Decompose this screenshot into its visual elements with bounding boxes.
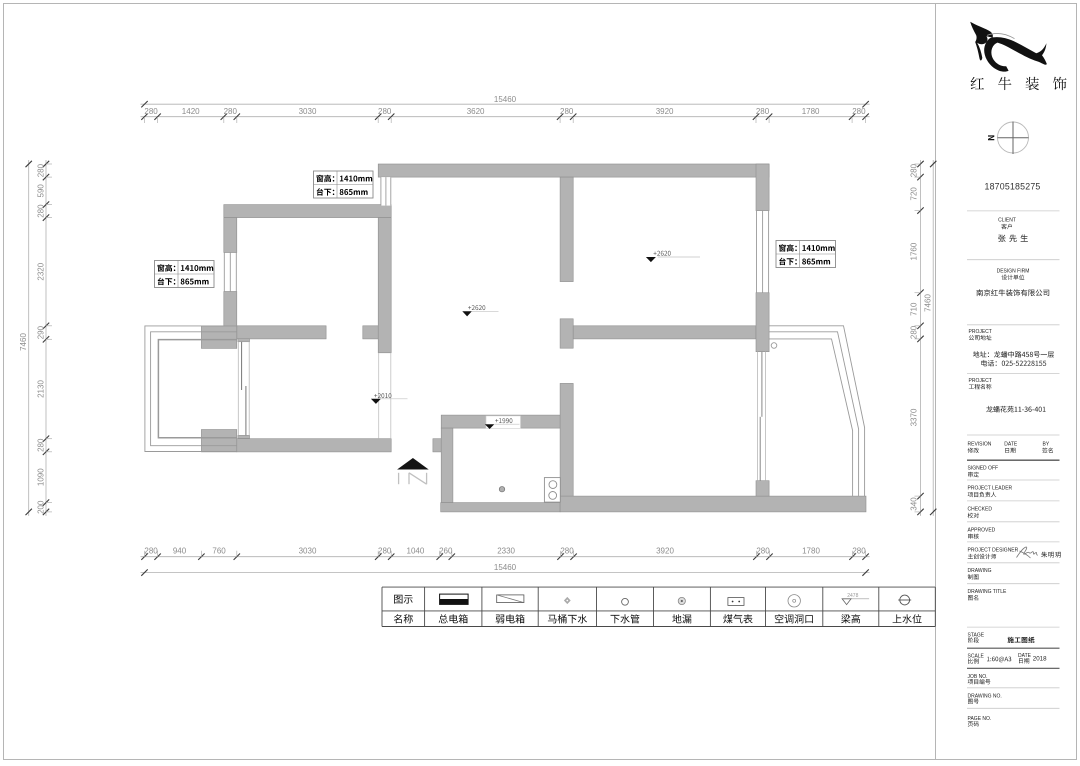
svg-text:280: 280 <box>37 163 46 177</box>
svg-text:APPROVED: APPROVED <box>968 528 996 534</box>
svg-text:3920: 3920 <box>656 107 674 116</box>
svg-text:DATE: DATE <box>1004 442 1018 448</box>
svg-text:590: 590 <box>37 184 46 198</box>
svg-text:1420: 1420 <box>182 107 200 116</box>
svg-text:280: 280 <box>37 438 46 452</box>
svg-text:280: 280 <box>37 204 46 218</box>
svg-text:280: 280 <box>852 107 866 116</box>
svg-text:280: 280 <box>756 107 770 116</box>
svg-text:1780: 1780 <box>802 547 820 556</box>
svg-text:CLIENT: CLIENT <box>998 218 1016 224</box>
svg-text:18705185275: 18705185275 <box>984 182 1040 192</box>
svg-text:DRAWING NO.: DRAWING NO. <box>968 694 1002 700</box>
svg-text:PAGE NO.: PAGE NO. <box>968 716 992 722</box>
svg-text:3030: 3030 <box>299 547 317 556</box>
svg-text:15460: 15460 <box>494 563 517 572</box>
svg-text:340: 340 <box>909 497 918 511</box>
svg-text:PROJECT: PROJECT <box>969 329 992 335</box>
svg-text:PROJECT LEADER: PROJECT LEADER <box>968 486 1013 492</box>
svg-text:DRAWING: DRAWING <box>968 568 992 574</box>
svg-text:760: 760 <box>212 547 226 556</box>
svg-text:260: 260 <box>439 547 453 556</box>
svg-text:REVISION: REVISION <box>968 442 992 448</box>
svg-text:2320: 2320 <box>37 262 46 280</box>
svg-text:PROJECT: PROJECT <box>969 378 992 384</box>
svg-text:280: 280 <box>144 547 158 556</box>
svg-text:3620: 3620 <box>467 107 485 116</box>
svg-text:1090: 1090 <box>37 468 46 486</box>
svg-text:3030: 3030 <box>299 107 317 116</box>
svg-text:JOB NO.: JOB NO. <box>968 674 988 680</box>
svg-text:280: 280 <box>378 547 392 556</box>
svg-text:BY: BY <box>1043 442 1050 448</box>
svg-text:1040: 1040 <box>407 547 425 556</box>
svg-text:280: 280 <box>756 547 770 556</box>
svg-text:710: 710 <box>909 302 918 316</box>
svg-text:STAGE: STAGE <box>968 633 985 639</box>
svg-text:CHECKED: CHECKED <box>968 507 993 513</box>
svg-text:280: 280 <box>852 547 866 556</box>
svg-text:940: 940 <box>173 547 187 556</box>
svg-text:280: 280 <box>560 107 574 116</box>
svg-text:2330: 2330 <box>497 547 515 556</box>
svg-text:DATE: DATE <box>1018 653 1032 659</box>
svg-text:720: 720 <box>909 187 918 201</box>
svg-text:290: 290 <box>37 325 46 339</box>
svg-text:280: 280 <box>909 163 918 177</box>
svg-text:DESIGN FIRM: DESIGN FIRM <box>997 268 1030 274</box>
svg-text:1780: 1780 <box>802 107 820 116</box>
svg-text:2130: 2130 <box>37 380 46 398</box>
svg-text:2018: 2018 <box>1033 656 1047 663</box>
svg-text:280: 280 <box>909 325 918 339</box>
svg-text:PROJECT DESIGNER: PROJECT DESIGNER <box>968 548 1019 554</box>
svg-text:280: 280 <box>560 547 574 556</box>
svg-text:15460: 15460 <box>494 95 517 104</box>
svg-text:3370: 3370 <box>909 408 918 426</box>
svg-text:7460: 7460 <box>924 294 933 312</box>
svg-text:280: 280 <box>224 107 238 116</box>
svg-text:200: 200 <box>37 500 46 514</box>
svg-text:7460: 7460 <box>19 333 28 351</box>
svg-text:3920: 3920 <box>656 547 674 556</box>
svg-text:SCALE: SCALE <box>968 653 985 659</box>
svg-text:280: 280 <box>378 107 392 116</box>
svg-text:SIGNED OFF: SIGNED OFF <box>968 466 999 472</box>
svg-text:1760: 1760 <box>909 242 918 260</box>
svg-text:2478: 2478 <box>847 593 858 599</box>
svg-text:DRAWING TITLE: DRAWING TITLE <box>968 589 1008 595</box>
svg-text:280: 280 <box>144 107 158 116</box>
